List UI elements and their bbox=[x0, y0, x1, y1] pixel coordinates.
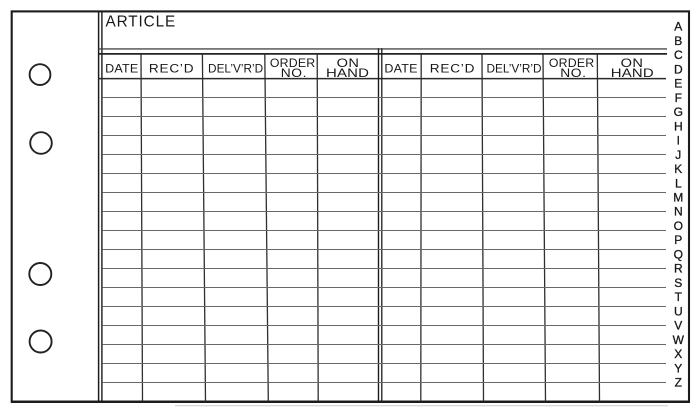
svg-text:U: U bbox=[674, 304, 683, 318]
svg-text:C: C bbox=[674, 48, 683, 62]
svg-text:P: P bbox=[674, 233, 682, 247]
svg-text:V: V bbox=[674, 319, 682, 333]
svg-text:DEL’V’R’D: DEL’V’R’D bbox=[486, 61, 541, 75]
svg-text:B: B bbox=[674, 34, 682, 48]
svg-text:ARTICLE: ARTICLE bbox=[106, 14, 177, 31]
svg-text:DEL’V’R’D: DEL’V’R’D bbox=[208, 61, 263, 75]
svg-text:HAND: HAND bbox=[326, 67, 369, 80]
svg-text:DATE: DATE bbox=[384, 62, 417, 76]
svg-text:X: X bbox=[674, 347, 682, 361]
svg-text:H: H bbox=[674, 119, 683, 133]
svg-text:K: K bbox=[674, 162, 682, 176]
svg-text:O: O bbox=[674, 219, 683, 233]
svg-text:DATE: DATE bbox=[105, 62, 138, 76]
svg-text:REC’D: REC’D bbox=[430, 61, 475, 75]
svg-text:Q: Q bbox=[674, 247, 683, 261]
svg-text:G: G bbox=[674, 105, 683, 119]
svg-text:R: R bbox=[674, 262, 683, 276]
svg-text:J: J bbox=[675, 148, 681, 162]
svg-text:T: T bbox=[675, 290, 683, 304]
svg-text:A: A bbox=[674, 20, 682, 34]
svg-text:F: F bbox=[675, 91, 682, 105]
svg-text:M: M bbox=[673, 191, 683, 205]
svg-text:Y: Y bbox=[674, 361, 682, 375]
svg-text:W: W bbox=[673, 333, 685, 347]
svg-text:L: L bbox=[675, 176, 682, 190]
svg-text:Z: Z bbox=[675, 376, 682, 390]
svg-text:E: E bbox=[674, 77, 682, 91]
svg-text:REC’D: REC’D bbox=[149, 61, 194, 75]
svg-text:NO.: NO. bbox=[560, 67, 586, 80]
svg-text:D: D bbox=[674, 62, 683, 76]
svg-text:S: S bbox=[674, 276, 682, 290]
svg-text:I: I bbox=[677, 134, 680, 148]
svg-text:NO.: NO. bbox=[281, 67, 307, 80]
svg-text:HAND: HAND bbox=[611, 67, 654, 80]
svg-text:N: N bbox=[674, 205, 683, 219]
